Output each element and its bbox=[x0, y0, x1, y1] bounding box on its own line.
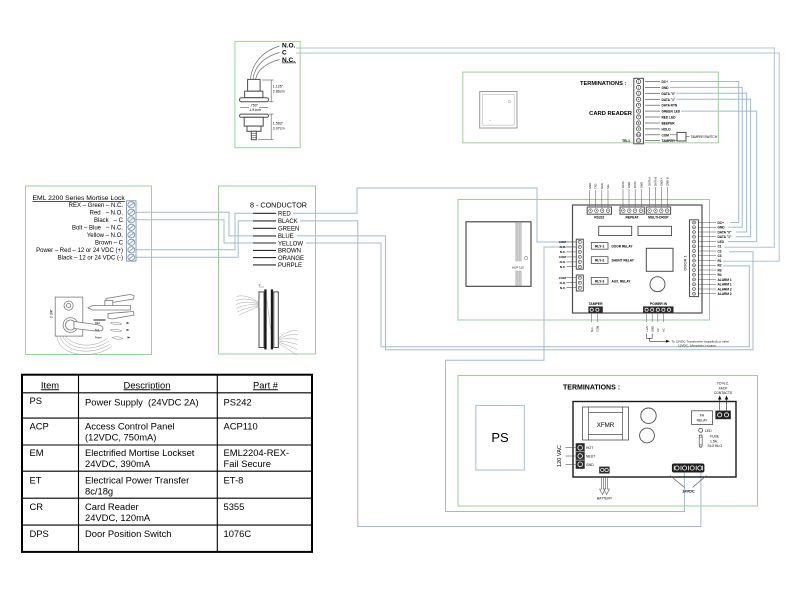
svg-text:TAMPER: TAMPER bbox=[588, 302, 603, 306]
svg-text:PS: PS bbox=[491, 430, 509, 445]
svg-text:XFMR: XFMR bbox=[597, 422, 615, 429]
svg-text:DOOR RELAY: DOOR RELAY bbox=[612, 245, 634, 249]
svg-text:RED: RED bbox=[278, 212, 291, 218]
svg-text:Power – Red – 12 or 24 VDC (+): Power – Red – 12 or 24 VDC (+) bbox=[36, 248, 123, 254]
svg-text:AC: AC bbox=[656, 328, 660, 332]
svg-text:GND: GND bbox=[662, 86, 670, 90]
svg-text:24VDC: 24VDC bbox=[682, 490, 694, 494]
svg-text:PS242: PS242 bbox=[224, 396, 252, 407]
svg-text:GND: GND bbox=[639, 182, 643, 188]
svg-text:Access Control Panel: Access Control Panel bbox=[85, 420, 175, 431]
svg-text:DOOR 1: DOOR 1 bbox=[683, 255, 688, 271]
svg-text:NEUT: NEUT bbox=[586, 455, 595, 459]
svg-text:Fail Secure: Fail Secure bbox=[224, 458, 271, 469]
svg-text:DPS: DPS bbox=[30, 528, 49, 539]
svg-text:Red – N.O.: Red – N.O. bbox=[90, 211, 124, 217]
svg-text:ALARM 2: ALARM 2 bbox=[718, 287, 732, 291]
svg-text:Black – 12 or 24 VDC (-): Black – 12 or 24 VDC (-) bbox=[58, 256, 123, 262]
svg-text:.750": .750" bbox=[250, 104, 259, 108]
svg-text:CR: CR bbox=[30, 501, 44, 512]
svg-text:MULTI-DROP: MULTI-DROP bbox=[648, 216, 669, 220]
svg-text:COM: COM bbox=[559, 255, 567, 259]
svg-text:Description: Description bbox=[124, 379, 171, 390]
svg-text:TERMINATIONS :: TERMINATIONS : bbox=[580, 81, 626, 87]
svg-text:BATTERY: BATTERY bbox=[597, 497, 613, 501]
svg-text:R3: R3 bbox=[718, 268, 722, 272]
svg-text:1.563": 1.563" bbox=[273, 122, 284, 126]
svg-text:2 3/4": 2 3/4" bbox=[50, 308, 54, 318]
svg-text:C3: C3 bbox=[718, 254, 722, 258]
svg-text:HOT: HOT bbox=[586, 446, 593, 450]
svg-text:Black – C: Black – C bbox=[94, 218, 124, 224]
svg-text:N.C.: N.C. bbox=[560, 286, 566, 290]
svg-text:Bolt – Blue – N.C.: Bolt – Blue – N.C. bbox=[72, 226, 123, 232]
svg-text:ALARM 1: ALARM 1 bbox=[718, 283, 732, 287]
svg-text:N.C.: N.C. bbox=[590, 326, 594, 332]
svg-text:R2: R2 bbox=[718, 264, 722, 268]
svg-text:REX: REX bbox=[95, 322, 100, 325]
svg-text:GND: GND bbox=[588, 183, 592, 189]
svg-text:24VDC, 390mA: 24VDC, 390mA bbox=[85, 458, 151, 469]
svg-text:GND: GND bbox=[718, 226, 726, 230]
svg-text:1": 1" bbox=[259, 283, 261, 287]
svg-text:TXD: TXD bbox=[594, 184, 598, 189]
svg-text:REX – Green – N.C.: REX – Green – N.C. bbox=[69, 203, 124, 209]
svg-text:AC: AC bbox=[662, 328, 666, 332]
svg-text:ACP110: ACP110 bbox=[224, 420, 258, 431]
svg-text:GREEN: GREEN bbox=[278, 227, 299, 233]
svg-text:RED LED: RED LED bbox=[662, 116, 677, 120]
svg-text:Bolt: Bolt bbox=[95, 329, 99, 332]
svg-text:Part #: Part # bbox=[253, 379, 279, 390]
svg-text:EM: EM bbox=[30, 447, 44, 458]
svg-text:RLY-2: RLY-2 bbox=[595, 259, 604, 263]
svg-text:R4: R4 bbox=[718, 273, 722, 277]
svg-text:ALARM 1: ALARM 1 bbox=[718, 278, 732, 282]
svg-text:8 - CONDUCTOR: 8 - CONDUCTOR bbox=[250, 201, 307, 210]
svg-text:GND: GND bbox=[627, 182, 631, 188]
svg-text:TAMPER: TAMPER bbox=[662, 139, 676, 143]
svg-text:N.C.: N.C. bbox=[560, 265, 566, 269]
svg-text:N.C.: N.C. bbox=[560, 250, 566, 254]
svg-text:ET-8: ET-8 bbox=[224, 474, 244, 485]
svg-text:120 VAC: 120 VAC bbox=[557, 445, 563, 467]
svg-text:REPEAT: REPEAT bbox=[626, 216, 639, 220]
svg-text:DATA "0": DATA "0" bbox=[662, 92, 676, 96]
svg-text:SIG: SIG bbox=[606, 184, 610, 189]
svg-text:RLY-3: RLY-3 bbox=[595, 279, 604, 283]
svg-text:RELAY: RELAY bbox=[697, 418, 709, 422]
svg-text:POWER IN: POWER IN bbox=[650, 302, 668, 306]
svg-text:ORANGE: ORANGE bbox=[278, 256, 304, 262]
svg-text:RS232: RS232 bbox=[594, 216, 604, 220]
svg-text:CARD READER: CARD READER bbox=[589, 111, 633, 117]
svg-text:24VDC, 120mA: 24VDC, 120mA bbox=[85, 512, 151, 523]
svg-text:R1: R1 bbox=[718, 259, 722, 263]
svg-text:2.86cm: 2.86cm bbox=[273, 90, 285, 94]
svg-text:GND: GND bbox=[650, 326, 654, 332]
svg-text:+: + bbox=[679, 475, 681, 479]
svg-text:12VDC, 1Amp(min.) source.: 12VDC, 1Amp(min.) source. bbox=[678, 343, 717, 347]
svg-text:BROWN: BROWN bbox=[278, 249, 301, 255]
svg-text:N.O.: N.O. bbox=[560, 260, 567, 264]
svg-text:FACP: FACP bbox=[719, 386, 729, 390]
svg-text:Brown – C: Brown – C bbox=[95, 241, 124, 247]
svg-text:Yellow – N.O.: Yellow – N.O. bbox=[87, 233, 123, 239]
svg-text:Card Reader: Card Reader bbox=[85, 501, 139, 512]
svg-text:Electrical Power Transfer: Electrical Power Transfer bbox=[85, 474, 189, 485]
svg-text:ALARM 2: ALARM 2 bbox=[718, 292, 732, 296]
svg-text:1.5A,: 1.5A, bbox=[710, 439, 718, 443]
svg-text:C2: C2 bbox=[718, 249, 722, 253]
svg-text:DATA RTN: DATA RTN bbox=[662, 104, 678, 108]
svg-text:C1: C1 bbox=[718, 245, 722, 249]
svg-text:SHUNT RELAY: SHUNT RELAY bbox=[612, 259, 635, 263]
svg-text:RLY-1: RLY-1 bbox=[595, 244, 604, 248]
svg-text:SLO BLO: SLO BLO bbox=[708, 444, 723, 448]
svg-text:COM: COM bbox=[559, 240, 567, 244]
svg-text:DATA: DATA bbox=[621, 181, 625, 188]
svg-text:Door Position Switch: Door Position Switch bbox=[85, 528, 172, 539]
svg-text:TAMPER SWITCH: TAMPER SWITCH bbox=[691, 135, 718, 139]
svg-text:BEEPER: BEEPER bbox=[662, 122, 676, 126]
svg-text:CONTACTS: CONTACTS bbox=[714, 391, 733, 395]
svg-text:DATA B: DATA B bbox=[653, 177, 657, 186]
svg-text:PS: PS bbox=[30, 395, 43, 406]
svg-text:N.O.: N.O. bbox=[560, 281, 567, 285]
svg-text:FA: FA bbox=[700, 413, 705, 417]
svg-text:EML2204-REX-: EML2204-REX- bbox=[224, 447, 290, 458]
svg-text:GND A: GND A bbox=[659, 177, 663, 186]
svg-text:1076C: 1076C bbox=[224, 528, 252, 539]
svg-text:+12V: +12V bbox=[645, 325, 649, 332]
svg-text:1.91cm: 1.91cm bbox=[249, 108, 261, 112]
svg-text:Item: Item bbox=[41, 379, 59, 390]
svg-text:BLUE: BLUE bbox=[278, 234, 294, 240]
svg-text:TO N.C.: TO N.C. bbox=[717, 382, 729, 386]
svg-text:HOLD: HOLD bbox=[662, 127, 672, 131]
svg-text:N.O.: N.O. bbox=[282, 43, 296, 50]
svg-text:TERMINATIONS :: TERMINATIONS : bbox=[563, 385, 620, 392]
svg-text:DC+: DC+ bbox=[662, 80, 669, 84]
svg-text:DATA A: DATA A bbox=[647, 177, 651, 186]
svg-text:1.125": 1.125" bbox=[273, 85, 284, 89]
svg-text:ACP: ACP bbox=[30, 421, 49, 432]
svg-text:GREEN LED: GREEN LED bbox=[662, 110, 681, 114]
svg-text:C: C bbox=[282, 50, 287, 57]
svg-text:COM: COM bbox=[559, 276, 567, 280]
svg-text:DATA "0": DATA "0" bbox=[718, 230, 732, 234]
svg-text:DC+: DC+ bbox=[718, 221, 725, 225]
svg-text:GND: GND bbox=[586, 463, 594, 467]
svg-text:LED: LED bbox=[718, 240, 725, 244]
svg-text:COM: COM bbox=[662, 133, 670, 137]
svg-text:ACP 110: ACP 110 bbox=[512, 266, 524, 270]
svg-text:BLACK: BLACK bbox=[278, 219, 298, 225]
svg-text:YELLOW: YELLOW bbox=[278, 241, 303, 247]
svg-text:TB-1: TB-1 bbox=[622, 139, 630, 143]
svg-text:GND B: GND B bbox=[665, 177, 669, 186]
svg-text:RXD: RXD bbox=[600, 183, 604, 189]
svg-text:ET: ET bbox=[30, 474, 42, 485]
svg-text:3.97cm: 3.97cm bbox=[273, 127, 285, 131]
svg-text:PURPLE: PURPLE bbox=[278, 263, 302, 269]
svg-text:AUX. RELAY: AUX. RELAY bbox=[612, 280, 632, 284]
svg-text:Electrified Mortise Lockset: Electrified Mortise Lockset bbox=[85, 447, 195, 458]
svg-text:8c/18g: 8c/18g bbox=[85, 485, 113, 496]
svg-text:(12VDC, 750mA): (12VDC, 750mA) bbox=[85, 431, 156, 442]
svg-text:Power: Power bbox=[95, 337, 102, 340]
svg-text:EML 2200 Series Mortise Lock: EML 2200 Series Mortise Lock bbox=[33, 195, 126, 202]
svg-text:DATA "1": DATA "1" bbox=[662, 98, 676, 102]
svg-text:LED: LED bbox=[705, 429, 712, 433]
svg-text:COM: COM bbox=[596, 325, 600, 332]
svg-text:FUSE: FUSE bbox=[710, 435, 720, 439]
svg-text:N.O.: N.O. bbox=[560, 245, 567, 249]
svg-text:DATA: DATA bbox=[633, 181, 637, 188]
svg-text:DATA "1": DATA "1" bbox=[718, 235, 732, 239]
svg-text:-: - bbox=[706, 475, 707, 479]
svg-text:5355: 5355 bbox=[224, 501, 245, 512]
svg-text:Power Supply (24VDC 2A): Power Supply (24VDC 2A) bbox=[85, 396, 199, 407]
